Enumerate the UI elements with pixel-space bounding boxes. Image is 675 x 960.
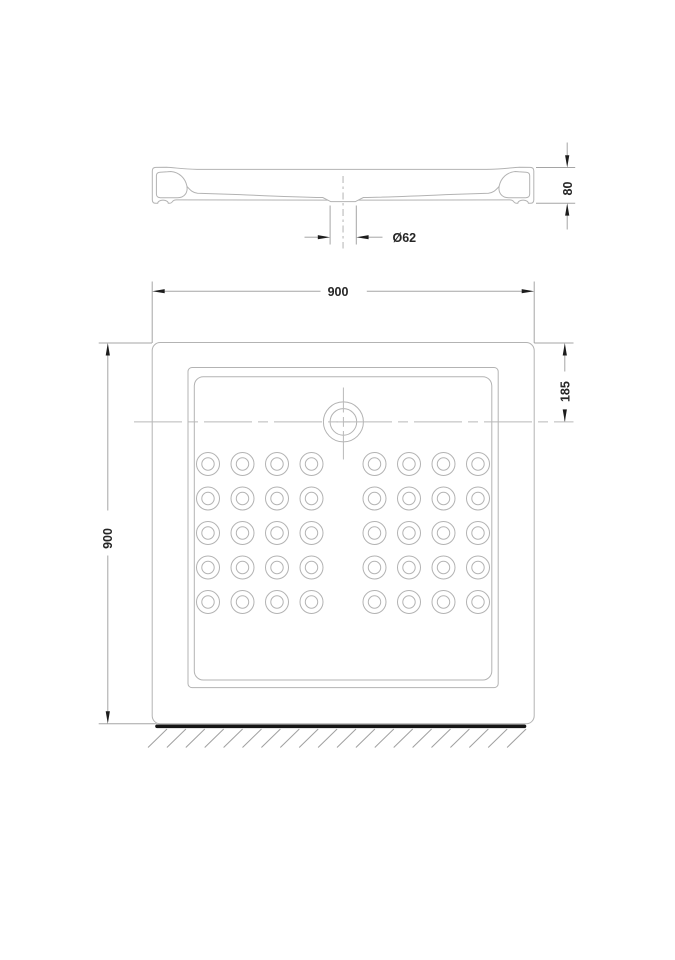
svg-text:Ø62: Ø62 — [393, 231, 417, 245]
svg-text:900: 900 — [101, 528, 115, 549]
svg-text:185: 185 — [558, 381, 572, 402]
svg-text:80: 80 — [561, 182, 575, 196]
svg-text:900: 900 — [328, 285, 349, 299]
